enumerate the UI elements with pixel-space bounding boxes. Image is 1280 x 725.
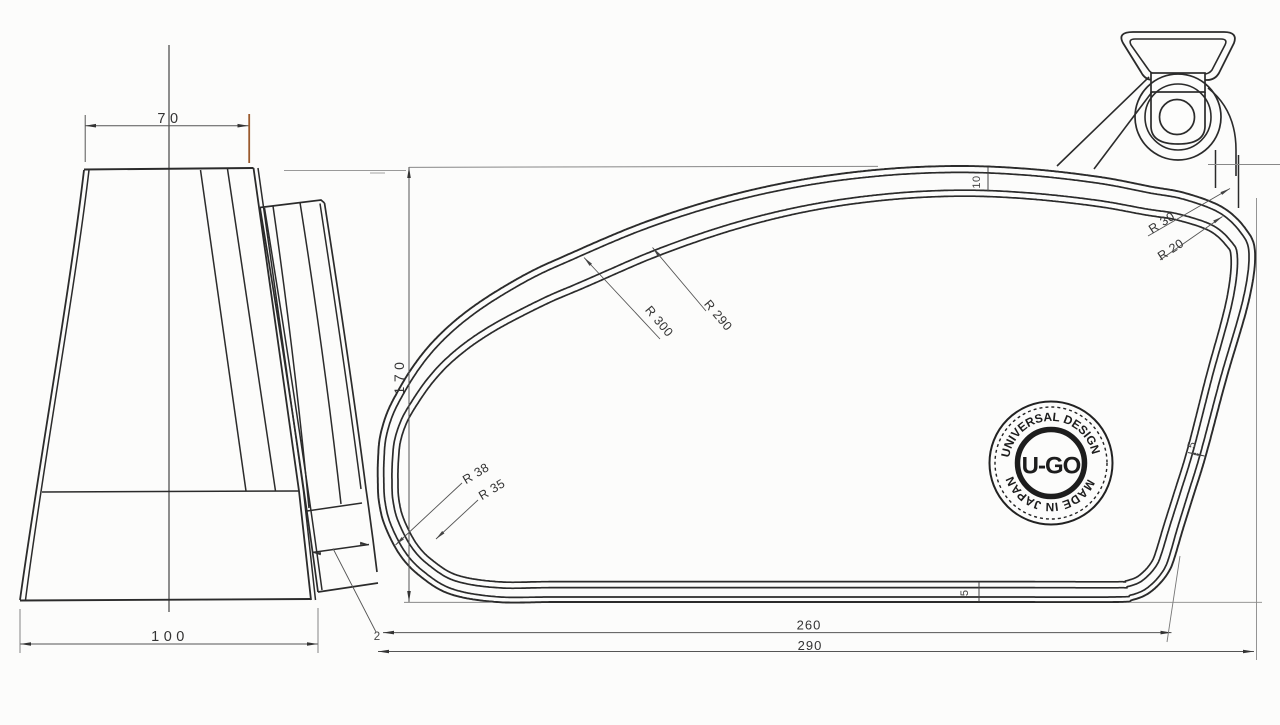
svg-text:5: 5 xyxy=(959,590,971,596)
svg-text:100: 100 xyxy=(151,629,189,645)
svg-text:70: 70 xyxy=(157,111,182,127)
svg-text:170: 170 xyxy=(391,358,407,395)
svg-text:U-GO: U-GO xyxy=(1022,453,1081,480)
svg-text:2: 2 xyxy=(374,631,380,643)
svg-text:10: 10 xyxy=(971,175,983,188)
svg-text:260: 260 xyxy=(797,618,822,633)
svg-text:290: 290 xyxy=(798,638,823,653)
